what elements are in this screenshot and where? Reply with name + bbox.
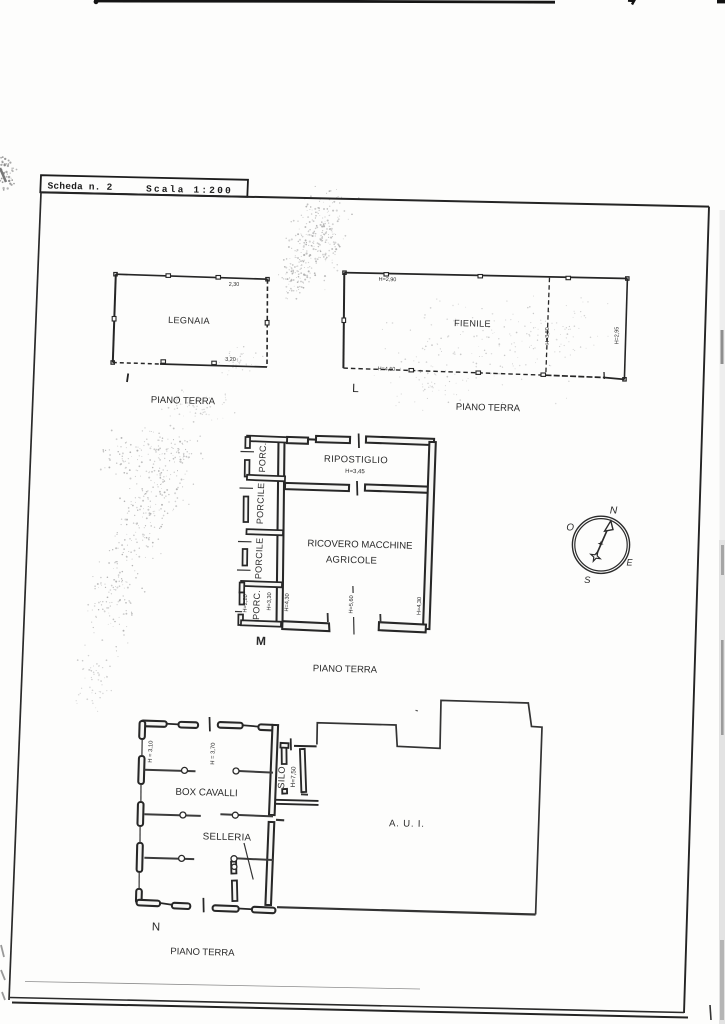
svg-text:AGRICOLE: AGRICOLE [326, 554, 377, 566]
svg-text:H=7,50: H=7,50 [290, 766, 298, 787]
svg-text:H=4,30: H=4,30 [416, 597, 423, 615]
svg-text:PORC.: PORC. [251, 590, 262, 620]
svg-text:N: N [610, 505, 618, 517]
svg-text:PORCILE: PORCILE [253, 537, 264, 579]
svg-text:2,30: 2,30 [229, 282, 240, 288]
svg-text:FIENILE: FIENILE [454, 318, 491, 329]
svg-text:S: S [584, 575, 591, 586]
svg-text:3,20: 3,20 [225, 357, 236, 363]
svg-text:RIPOSTIGLIO: RIPOSTIGLIO [324, 454, 388, 467]
svg-text:M: M [256, 634, 266, 648]
svg-text:Scheda n. 2: Scheda n. 2 [47, 181, 112, 193]
svg-text:PIANO TERRA: PIANO TERRA [170, 946, 235, 959]
svg-text:H=3,30: H=3,30 [266, 592, 273, 610]
svg-text:PIANO TERRA: PIANO TERRA [151, 395, 216, 408]
svg-text:H=3,45: H=3,45 [345, 469, 365, 475]
svg-text:L: L [352, 381, 359, 395]
svg-text:O: O [566, 522, 574, 533]
svg-text:H=4,60: H=4,60 [378, 366, 396, 372]
svg-text:H=3,80: H=3,80 [545, 327, 551, 345]
svg-text:PORC.: PORC. [257, 442, 268, 472]
svg-text:E: E [626, 558, 633, 568]
svg-text:H=2,90: H=2,90 [379, 277, 397, 283]
svg-text:BOX CAVALLI: BOX CAVALLI [175, 787, 238, 800]
svg-text:LEGNAIA: LEGNAIA [168, 315, 211, 326]
svg-text:SELLERIA: SELLERIA [203, 831, 252, 843]
svg-text:SILO: SILO [276, 766, 287, 789]
svg-text:PIANO TERRA: PIANO TERRA [313, 663, 378, 676]
svg-text:A. U. I.: A. U. I. [389, 818, 425, 830]
svg-text:H = 3,10: H = 3,10 [148, 741, 155, 763]
svg-text:H=2,20: H=2,20 [242, 594, 249, 612]
svg-text:H=4,30: H=4,30 [284, 593, 291, 611]
svg-text:H=5,60: H=5,60 [348, 595, 355, 613]
svg-text:PIANO TERRA: PIANO TERRA [456, 402, 521, 414]
svg-text:N: N [152, 921, 161, 933]
svg-text:H=2,95: H=2,95 [615, 327, 621, 345]
svg-text:PORCILE: PORCILE [255, 482, 266, 524]
svg-text:H = 3,70: H = 3,70 [210, 743, 217, 765]
